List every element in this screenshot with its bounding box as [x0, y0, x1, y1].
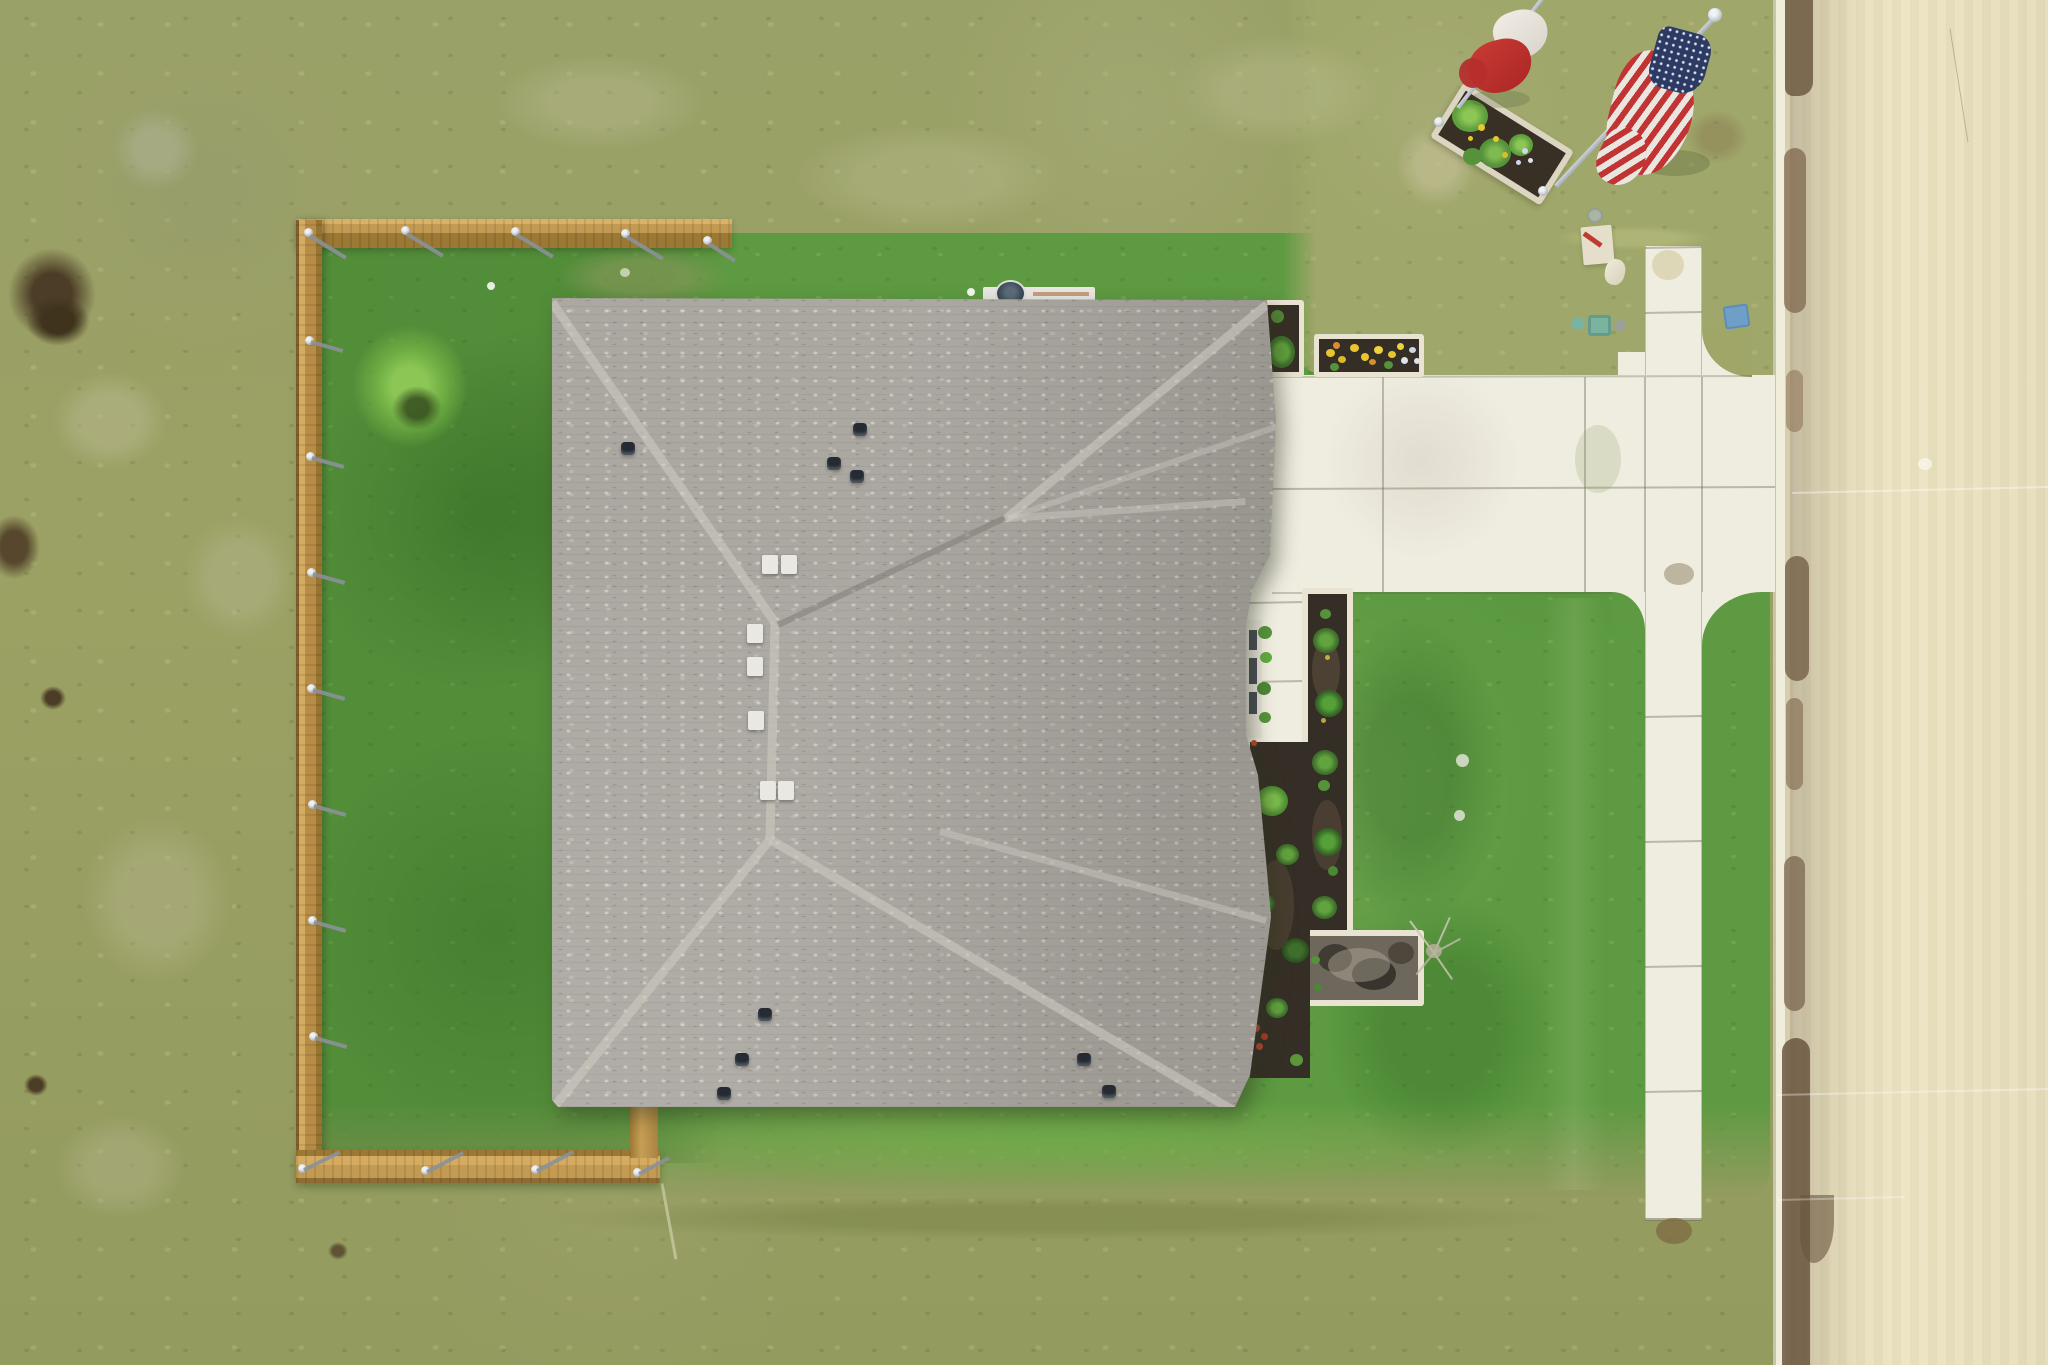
roof-vent-pipe [850, 470, 864, 483]
roof-vent-pipe [1102, 1085, 1116, 1098]
roof-hip [939, 828, 1267, 924]
roof-vent-pipe [717, 1087, 731, 1100]
roof-hip [1007, 424, 1277, 521]
roof-hip [548, 300, 778, 625]
roof-vent-white [747, 624, 763, 643]
roof-vent-white [762, 555, 778, 574]
street-pavement [1775, 0, 2048, 1365]
driveway [1270, 375, 1775, 592]
roof-vent-pipe [735, 1053, 749, 1066]
roof-valley [777, 515, 1007, 627]
roof-hip [768, 836, 1238, 1116]
wood-fence-bottom-run [296, 1150, 660, 1183]
roof-vent-white [748, 711, 764, 730]
roof-ridge [766, 622, 780, 839]
roof-vent-white [747, 657, 763, 676]
roof-shingles [540, 290, 1292, 1120]
roof-vent-pipe [827, 457, 841, 470]
house-roof [540, 290, 1292, 1120]
roof-hip [549, 837, 774, 1113]
roof-vent-white [778, 781, 794, 800]
aerial-photo-house-lot [0, 0, 2048, 1365]
wood-fence-left-run [296, 220, 322, 1176]
roof-vent-pipe [621, 442, 635, 455]
roof-vent-pipe [1077, 1053, 1091, 1066]
street-curb [1773, 0, 1790, 1365]
roof-hip [1002, 301, 1270, 523]
roof-vent-white [760, 781, 776, 800]
roof-vent-pipe [758, 1008, 772, 1021]
wood-fence-top-run [296, 219, 732, 248]
roof-vent-white [781, 555, 797, 574]
roof-hip [1008, 498, 1245, 522]
roof-shade-right [540, 290, 1292, 1120]
roof-vent-pipe [853, 423, 867, 436]
roof-details [540, 290, 1292, 1120]
roof-shade-bottom [540, 590, 1292, 1120]
